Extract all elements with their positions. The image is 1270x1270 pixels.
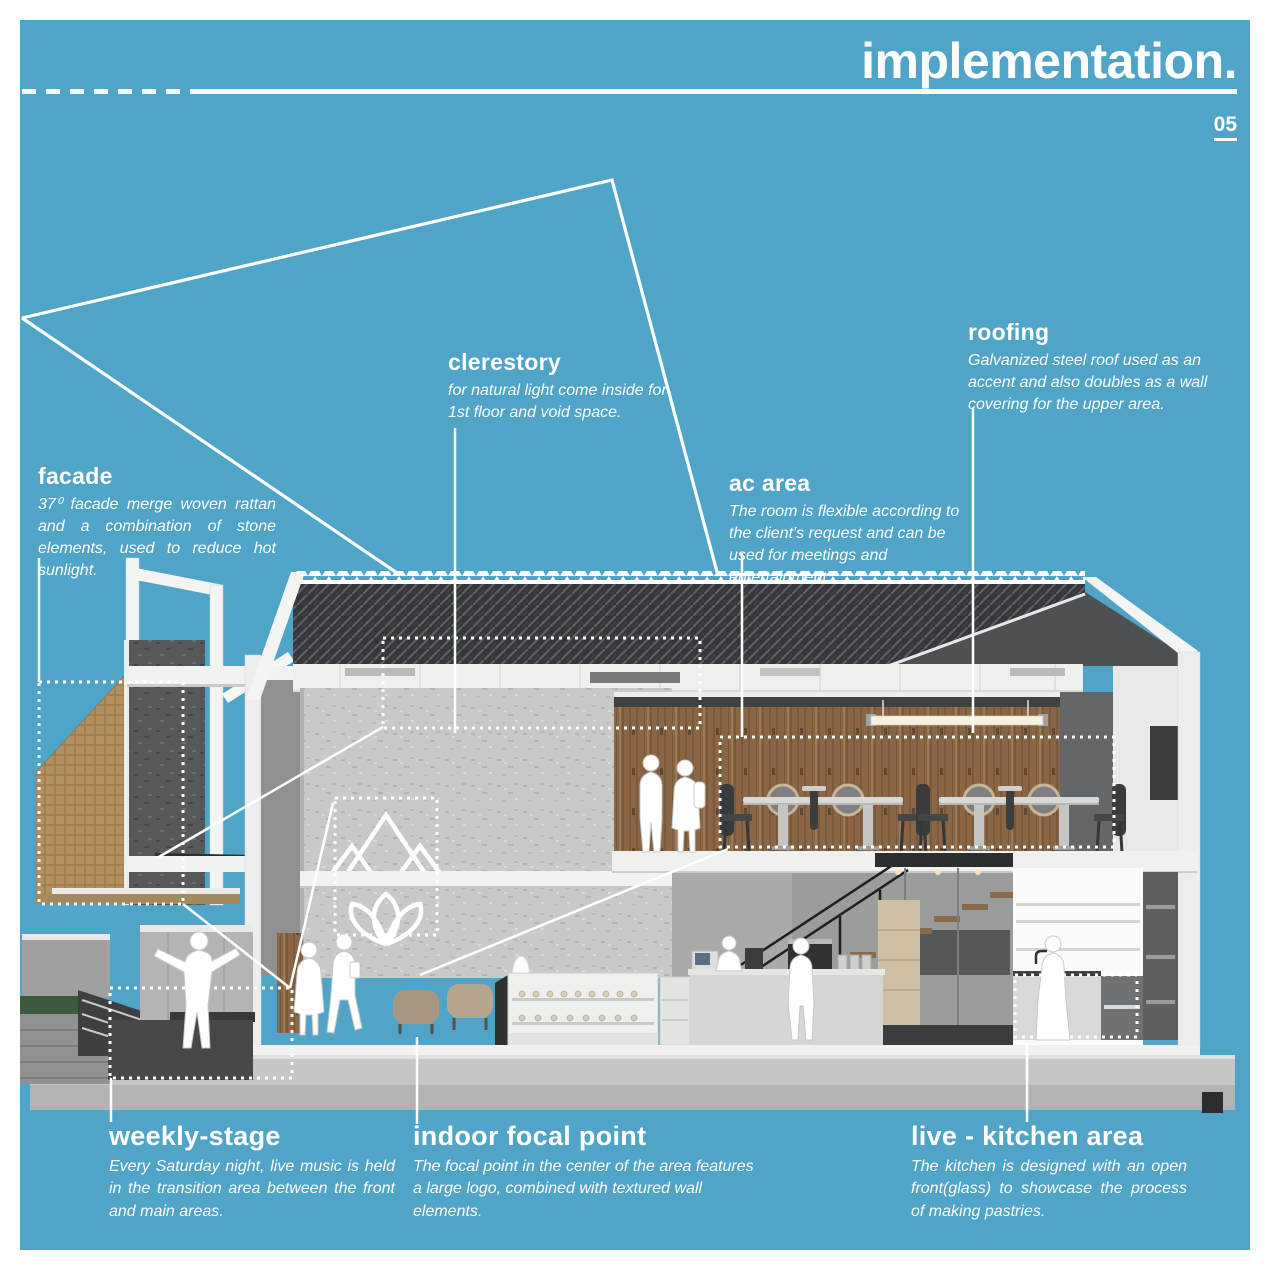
building-section [20, 558, 1235, 1113]
section-illustration [0, 0, 1270, 1270]
facade-body: 37⁰ facade merge woven rattan and a comb… [38, 494, 276, 582]
annotation-clerestory: clerestory for natural light come inside… [448, 350, 680, 424]
armchair [393, 990, 439, 1024]
annotation-ac-area: ac area The room is flexible according t… [729, 471, 973, 589]
wood-cabinet [878, 900, 920, 1025]
annotation-weekly-stage: weekly-stage Every Saturday night, live … [109, 1122, 395, 1223]
live-kitchen-heading: live - kitchen area [911, 1122, 1187, 1150]
pendant-light [871, 716, 1043, 725]
ac-area-heading: ac area [729, 471, 973, 495]
live-kitchen-body: The kitchen is designed with an open fro… [911, 1156, 1187, 1222]
annotation-indoor-focal-point: indoor focal point The focal point in th… [413, 1122, 765, 1223]
stage-floor [108, 1020, 253, 1080]
roofing-heading: roofing [968, 320, 1208, 344]
weekly-stage-body: Every Saturday night, live music is held… [109, 1156, 395, 1222]
facade-heading: facade [38, 464, 276, 488]
ac-area-body: The room is flexible according to the cl… [729, 501, 973, 589]
annotation-facade: facade 37⁰ facade merge woven rattan and… [38, 464, 276, 582]
indoor-focal-point-heading: indoor focal point [413, 1122, 765, 1150]
indoor-focal-point-body: The focal point in the center of the are… [413, 1156, 765, 1222]
annotation-roofing: roofing Galvanized steel roof used as an… [968, 320, 1208, 416]
weekly-stage-heading: weekly-stage [109, 1122, 395, 1150]
presentation-board: implementation. 05 [0, 0, 1270, 1270]
clerestory-body: for natural light come inside for 1st fl… [448, 380, 680, 424]
clerestory-heading: clerestory [448, 350, 680, 374]
weekly-stage-area [20, 925, 255, 1084]
armchair [447, 984, 493, 1018]
service-counter [690, 975, 883, 1047]
roofing-body: Galvanized steel roof used as an accent … [968, 350, 1208, 416]
annotation-live-kitchen: live - kitchen area The kitchen is desig… [911, 1122, 1187, 1223]
rattan-facade-panel [36, 676, 124, 894]
